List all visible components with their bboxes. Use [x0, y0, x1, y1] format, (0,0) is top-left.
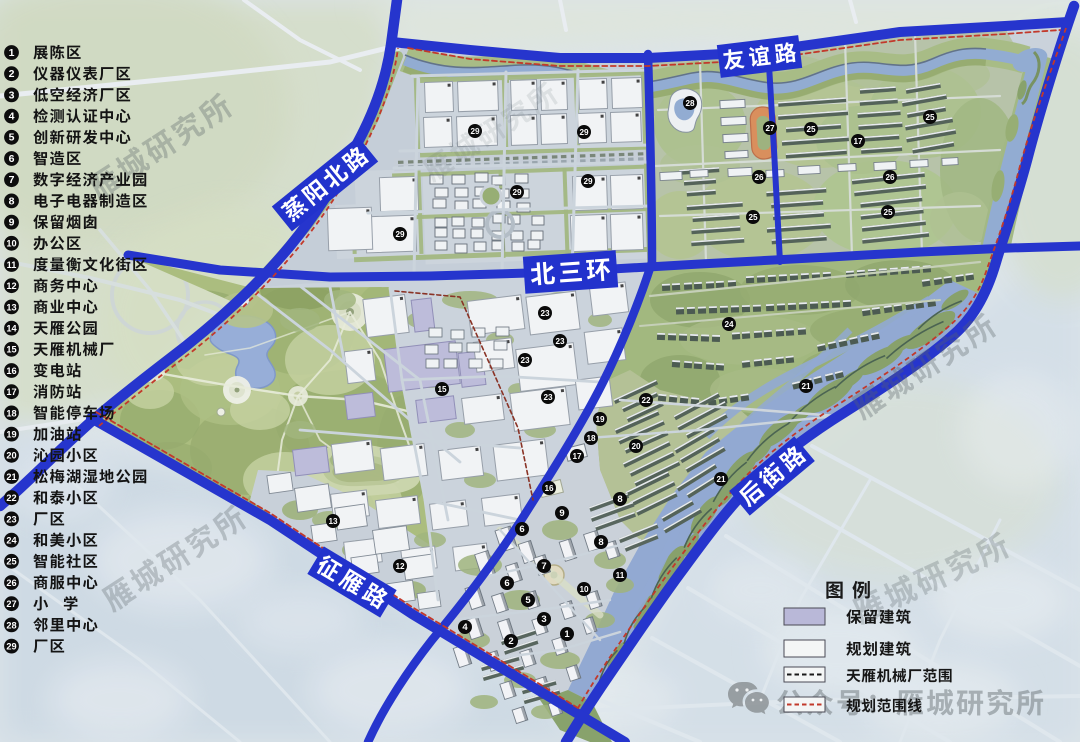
svg-text:7: 7	[541, 561, 546, 572]
svg-text:22: 22	[641, 396, 651, 405]
svg-text:23: 23	[555, 337, 565, 346]
svg-text:15: 15	[437, 385, 447, 394]
svg-text:6: 6	[519, 524, 524, 535]
svg-text:29: 29	[395, 230, 405, 239]
svg-text:12: 12	[395, 562, 405, 571]
svg-text:12: 12	[6, 281, 16, 291]
svg-text:3: 3	[9, 89, 15, 101]
svg-text:18: 18	[6, 408, 16, 418]
svg-text:21: 21	[716, 475, 726, 484]
svg-text:29: 29	[583, 177, 593, 186]
svg-text:25: 25	[748, 213, 758, 222]
svg-text:23: 23	[543, 393, 553, 402]
svg-text:27: 27	[765, 124, 775, 133]
svg-text:13: 13	[6, 302, 16, 312]
svg-text:21: 21	[801, 382, 811, 391]
svg-text:10: 10	[6, 239, 16, 249]
svg-text:9: 9	[9, 217, 15, 229]
svg-text:23: 23	[540, 309, 550, 318]
svg-text:26: 26	[885, 173, 895, 182]
svg-text:29: 29	[512, 188, 522, 197]
svg-text:8: 8	[9, 195, 15, 207]
svg-text:17: 17	[572, 452, 582, 461]
svg-text:2: 2	[9, 68, 15, 80]
svg-text:29: 29	[579, 128, 589, 137]
svg-text:24: 24	[724, 320, 734, 329]
svg-text:5: 5	[9, 132, 15, 144]
svg-text:28: 28	[685, 99, 695, 108]
svg-text:20: 20	[6, 451, 16, 461]
svg-text:26: 26	[6, 578, 16, 588]
svg-text:15: 15	[6, 345, 16, 355]
svg-text:28: 28	[6, 620, 16, 630]
svg-text:23: 23	[520, 356, 530, 365]
svg-text:25: 25	[6, 557, 16, 567]
svg-text:1: 1	[9, 47, 15, 59]
svg-text:1: 1	[564, 629, 570, 640]
svg-text:5: 5	[525, 595, 531, 606]
svg-text:7: 7	[9, 174, 15, 186]
svg-text:2: 2	[508, 636, 513, 647]
svg-text:25: 25	[883, 208, 893, 217]
svg-text:27: 27	[6, 599, 16, 609]
svg-text:16: 16	[6, 366, 16, 376]
svg-text:21: 21	[6, 472, 16, 482]
svg-text:14: 14	[6, 324, 17, 334]
svg-text:19: 19	[6, 430, 16, 440]
svg-text:11: 11	[616, 571, 625, 580]
svg-text:22: 22	[6, 493, 16, 503]
svg-text:29: 29	[6, 642, 16, 652]
svg-text:9: 9	[559, 508, 564, 519]
svg-text:11: 11	[7, 260, 17, 270]
svg-text:8: 8	[598, 537, 603, 548]
svg-text:24: 24	[6, 536, 17, 546]
svg-text:4: 4	[462, 622, 468, 633]
svg-text:8: 8	[617, 494, 622, 505]
svg-text:13: 13	[328, 517, 338, 526]
svg-text:19: 19	[595, 415, 605, 424]
svg-text:4: 4	[9, 111, 15, 123]
svg-text:6: 6	[9, 153, 15, 165]
svg-text:20: 20	[631, 442, 641, 451]
svg-text:17: 17	[853, 137, 863, 146]
svg-text:23: 23	[6, 514, 16, 524]
svg-text:6: 6	[504, 578, 509, 589]
svg-text:16: 16	[544, 484, 554, 493]
svg-text:3: 3	[541, 614, 546, 625]
svg-text:10: 10	[579, 585, 589, 594]
svg-text:26: 26	[754, 173, 764, 182]
svg-text:18: 18	[586, 434, 596, 443]
svg-text:17: 17	[6, 387, 16, 397]
svg-text:25: 25	[925, 113, 935, 122]
svg-text:25: 25	[806, 125, 816, 134]
